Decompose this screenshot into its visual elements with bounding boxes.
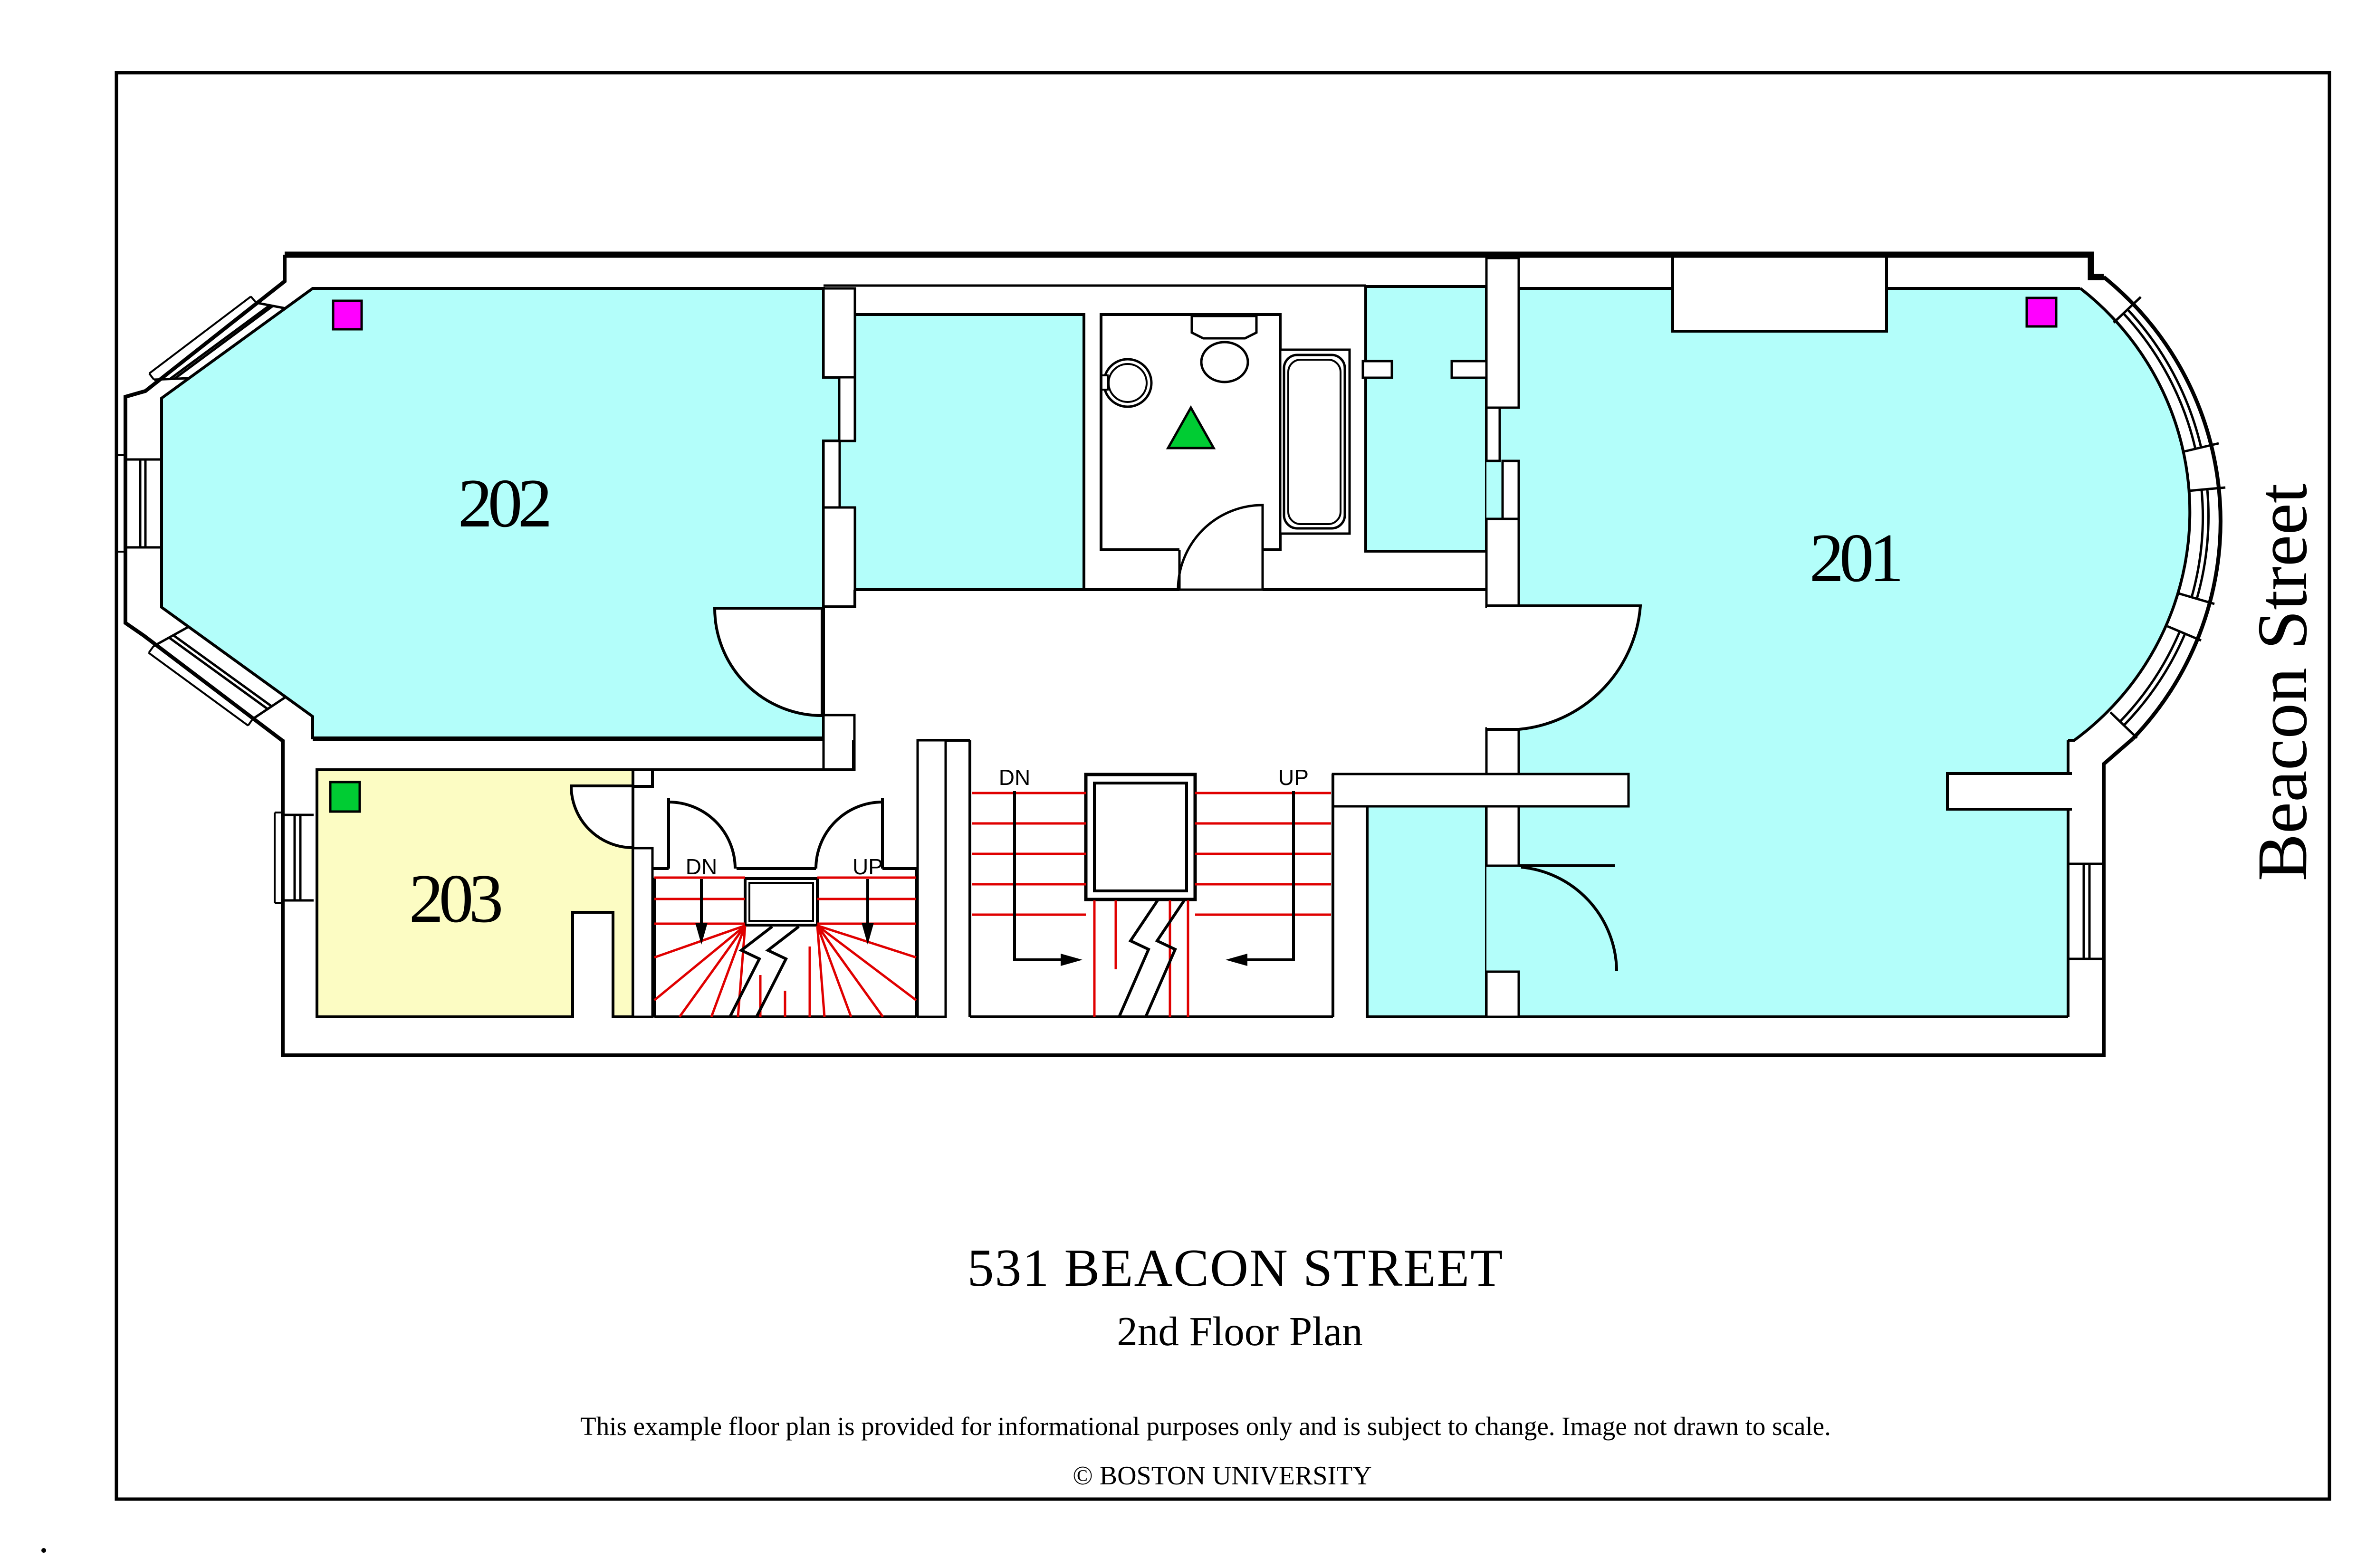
svg-text:UP: UP bbox=[853, 854, 883, 879]
svg-text:531 BEACON STREET: 531 BEACON STREET bbox=[967, 1239, 1504, 1298]
svg-text:DN: DN bbox=[999, 765, 1030, 790]
svg-text:203: 203 bbox=[409, 860, 501, 937]
svg-text:This example floor plan is pro: This example floor plan is provided for … bbox=[580, 1412, 1831, 1441]
svg-text:UP: UP bbox=[1278, 765, 1309, 790]
svg-text:2nd Floor Plan: 2nd Floor Plan bbox=[1117, 1308, 1362, 1354]
svg-text:201: 201 bbox=[1810, 519, 1900, 596]
svg-text:Beacon Street: Beacon Street bbox=[2243, 483, 2322, 881]
svg-text:DN: DN bbox=[686, 854, 717, 879]
svg-text:© BOSTON UNIVERSITY: © BOSTON UNIVERSITY bbox=[1073, 1461, 1372, 1491]
svg-text:202: 202 bbox=[458, 465, 549, 542]
